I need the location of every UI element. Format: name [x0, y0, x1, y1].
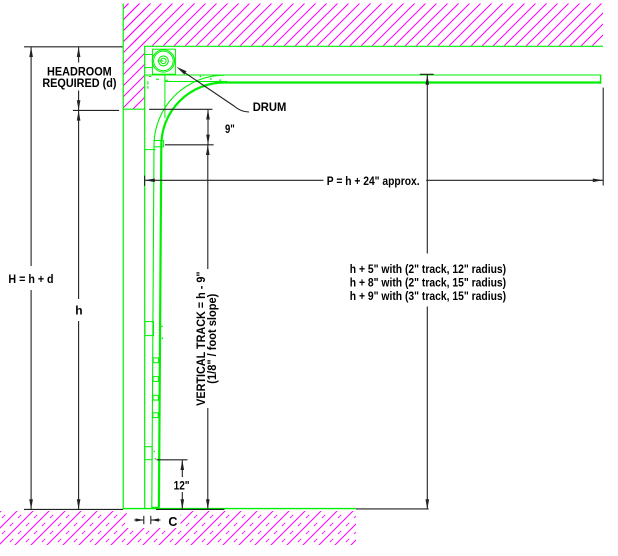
svg-text:h + 9" with (3" track, 15" rad: h + 9" with (3" track, 15" radius) [350, 289, 506, 303]
svg-text:h + 5" with (2" track, 12" rad: h + 5" with (2" track, 12" radius) [350, 262, 506, 276]
svg-text:h + 8" with (2" track, 15" rad: h + 8" with (2" track, 15" radius) [350, 276, 506, 290]
svg-text:P = h + 24" approx.: P = h + 24" approx. [327, 174, 420, 188]
svg-text:H = h + d: H = h + d [8, 272, 53, 286]
svg-text:12": 12" [174, 479, 190, 493]
svg-text:DRUM: DRUM [253, 100, 287, 114]
svg-text:C: C [168, 515, 177, 529]
svg-text:9": 9" [225, 122, 235, 136]
svg-text:(1/8" / foot slope): (1/8" / foot slope) [205, 294, 219, 384]
svg-text:REQUIRED (d): REQUIRED (d) [42, 76, 116, 90]
svg-text:h: h [75, 303, 82, 317]
